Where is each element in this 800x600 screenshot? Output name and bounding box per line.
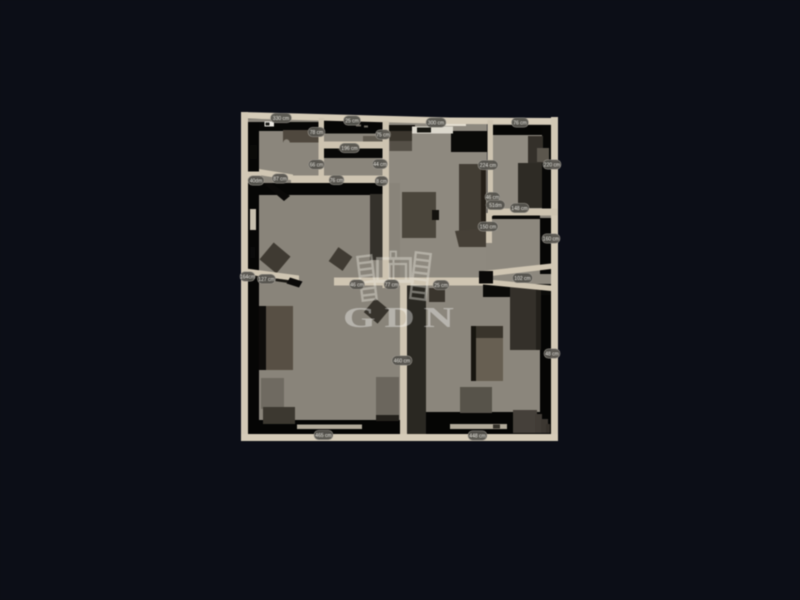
svg-text:66 cm: 66 cm [310,162,324,168]
svg-text:300 cm: 300 cm [428,120,444,126]
svg-text:76 cm: 76 cm [330,178,344,184]
svg-text:465 cm: 465 cm [315,433,331,439]
svg-text:40dm: 40dm [250,178,263,184]
svg-text:148 cm: 148 cm [511,206,527,212]
svg-text:102 cm: 102 cm [514,276,530,282]
svg-text:78 cm: 78 cm [310,130,324,136]
svg-text:25 cm: 25 cm [345,118,359,124]
svg-text:75 cm: 75 cm [376,132,390,138]
svg-text:44 cm: 44 cm [373,162,387,168]
svg-text:46 cm: 46 cm [486,195,500,201]
svg-text:GDN: GDN [343,301,454,333]
svg-text:160 cm: 160 cm [543,236,559,242]
svg-text:25 cm: 25 cm [434,283,448,289]
svg-text:46 cm: 46 cm [350,282,364,288]
svg-text:77 cm: 77 cm [385,282,399,288]
svg-text:150 cm: 150 cm [480,224,496,230]
svg-text:460 cm: 460 cm [394,358,410,364]
svg-text:448 cm: 448 cm [469,433,485,439]
svg-text:330 cm: 330 cm [273,116,289,122]
svg-text:51dm: 51dm [489,203,502,209]
svg-text:224 cm: 224 cm [480,163,496,169]
svg-text:196 cm: 196 cm [341,146,357,152]
svg-text:127 cm: 127 cm [258,277,274,283]
svg-text:8 cm: 8 cm [376,179,387,185]
svg-text:76 cm: 76 cm [513,120,527,126]
svg-text:220 cm: 220 cm [544,162,560,168]
svg-text:87 cm: 87 cm [273,176,287,182]
svg-text:48 cm: 48 cm [545,351,559,357]
svg-text:164cm: 164cm [240,274,255,280]
